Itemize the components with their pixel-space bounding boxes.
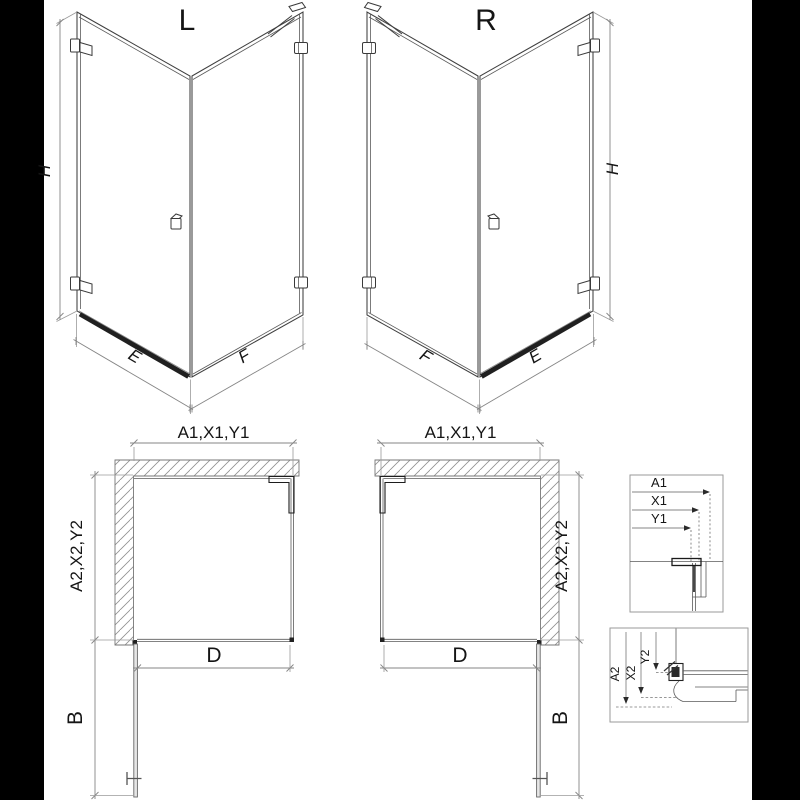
detail-tray-profile: A2 X2 Y2 bbox=[608, 628, 748, 722]
detail-x2-label: X2 bbox=[624, 665, 638, 680]
drawing-canvas: L H E F R H F E A1,X1,Y1 A2,X2,Y2 D B A1… bbox=[0, 0, 800, 800]
plan-right-dim-width-label: A1,X1,Y1 bbox=[425, 423, 497, 442]
view-label-right: R bbox=[475, 4, 497, 37]
plan-left-dim-door-label: B bbox=[64, 711, 87, 725]
plan-left-dim-width-label: A1,X1,Y1 bbox=[178, 423, 250, 442]
detail-y2-label: Y2 bbox=[638, 649, 652, 664]
plan-left-dim-opening-label: D bbox=[206, 644, 221, 667]
detail-y1-label: Y1 bbox=[651, 511, 667, 526]
detail-a2-label: A2 bbox=[608, 666, 622, 681]
detail-a1-label: A1 bbox=[651, 475, 667, 490]
dim-label-h-left: H bbox=[35, 164, 54, 177]
detail-wall-profile: A1 X1 Y1 bbox=[630, 475, 723, 612]
detail-x1-label: X1 bbox=[651, 493, 667, 508]
plan-right-dim-depth-label: A2,X2,Y2 bbox=[552, 520, 571, 592]
plan-right-dim-door-label: B bbox=[549, 711, 572, 725]
plan-right-dim-opening-label: D bbox=[452, 644, 467, 667]
screenshot-stage: L H E F R H F E A1,X1,Y1 A2,X2,Y2 D B A1… bbox=[0, 0, 800, 800]
plan-left-dim-depth-label: A2,X2,Y2 bbox=[67, 520, 86, 592]
dim-label-h-right: H bbox=[603, 162, 622, 175]
view-label-left: L bbox=[179, 4, 196, 37]
